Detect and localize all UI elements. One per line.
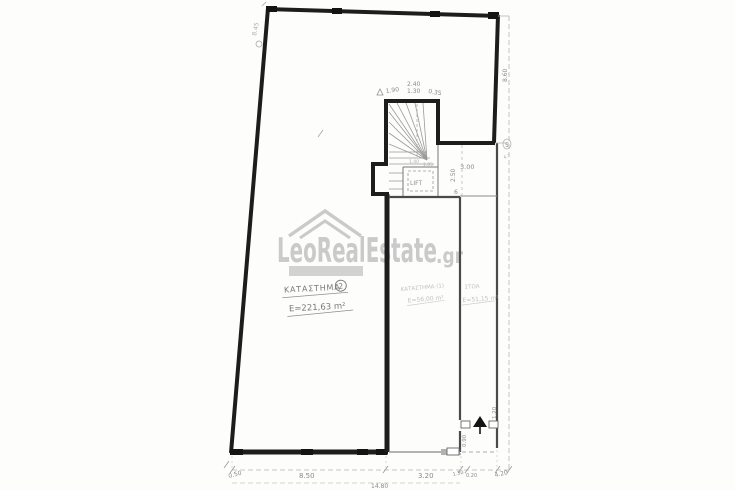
dim-label: 1.30	[452, 470, 464, 478]
shop2-name: ΚΑΤΑΣΤΗΜΑ	[284, 283, 341, 295]
dim-label: 2.40	[407, 81, 421, 88]
dim-label: 1.05	[423, 162, 433, 168]
room-labels: ΚΑΤΑΣΤΗΜΑ 2 Ε=221,63 m² ΚΑΤΑΣΤΗΜΑ (1) Ε=…	[282, 280, 500, 317]
dim-label: 3.20	[418, 472, 434, 480]
dim-label: 14.80	[371, 483, 388, 490]
floorplan-canvas: LeoRealEstate .gr	[0, 0, 735, 490]
shop1-name: ΚΑΤΑΣΤΗΜΑ (1)	[400, 283, 444, 293]
dim-label: 0.20	[466, 473, 477, 479]
floorplan-page: LeoRealEstate .gr	[0, 0, 735, 490]
dim-label: 8.50	[299, 472, 315, 480]
door-openings	[447, 421, 498, 455]
dim-label: 8.45	[251, 22, 261, 37]
dim-label: 3.00	[460, 163, 474, 171]
dim-label: 4.20	[494, 469, 509, 479]
dim-label: 1.20	[492, 406, 498, 419]
shop2-number: 2	[338, 282, 343, 291]
stairs	[389, 103, 434, 189]
watermark-brand: LeoRealEstate	[277, 231, 437, 271]
shop1-label: ΚΑΤΑΣΤΗΜΑ (1) Ε=56,00 m²	[400, 283, 445, 306]
dim-label: 1.40	[409, 159, 419, 165]
dim-label: 5	[505, 142, 509, 149]
watermark-bar	[289, 266, 363, 276]
shop2-label: ΚΑΤΑΣΤΗΜΑ 2 Ε=221,63 m²	[282, 280, 354, 317]
entrance-arrow-icon	[473, 416, 487, 434]
dim-label: 0.90	[462, 434, 468, 447]
dim-label: 0.50	[228, 470, 243, 480]
lift-shaft: LIFT	[403, 145, 438, 196]
dim-label: 6	[454, 189, 458, 196]
dim-label: 2.50	[450, 168, 457, 182]
dim-label: 4.7	[503, 153, 512, 161]
dim-label: 0.35	[428, 88, 443, 97]
stoa-label: ΣΤΟΑ Ε=51,15 m²	[460, 283, 499, 306]
dim-label: 8.60	[502, 68, 509, 82]
shop2-area: Ε=221,63 m²	[289, 301, 346, 314]
stoa-name: ΣΤΟΑ	[464, 284, 480, 291]
dim-label: 1.90	[385, 86, 399, 95]
lift-label: LIFT	[410, 180, 422, 187]
watermark: LeoRealEstate .gr	[277, 211, 464, 276]
dim-label: 1.30	[407, 88, 421, 95]
